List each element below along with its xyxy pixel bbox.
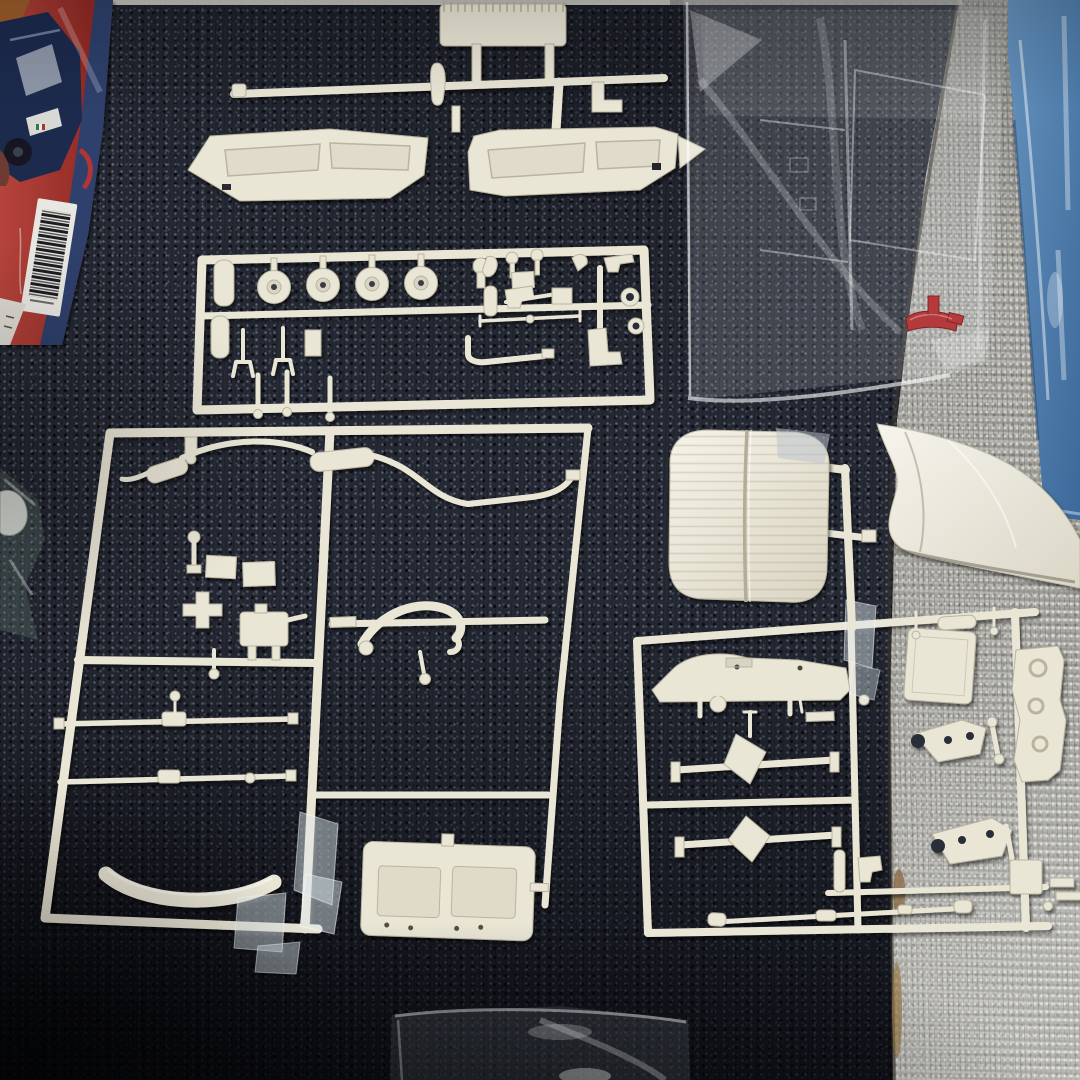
- floor-panel-part: [360, 831, 550, 941]
- axle-rod-1: [54, 691, 298, 729]
- rear-axle-2: [675, 816, 841, 862]
- control-arm-2: [931, 818, 1012, 864]
- rear-axle-1: [671, 712, 839, 784]
- bumper-part: [106, 870, 274, 900]
- bench-seat-part: [669, 428, 830, 602]
- chassis-crossmember: [652, 654, 850, 716]
- spindle-part: [431, 63, 446, 105]
- bottom-bag: [390, 1006, 690, 1080]
- axle-rod-2: [60, 770, 296, 783]
- main-sprue: [45, 428, 588, 974]
- dashboard-left: [188, 129, 428, 201]
- kit-box: [0, 0, 113, 345]
- curved-arm-part: [359, 606, 461, 685]
- photo-scene: [0, 0, 1080, 1080]
- dashboard-sprue: [188, 2, 705, 201]
- small-parts-cluster: [183, 531, 305, 679]
- scene-objects: [0, 0, 1080, 1080]
- left-bag-scrap: [0, 468, 45, 640]
- control-arm-1: [911, 717, 1004, 764]
- dashboard-right: [468, 127, 705, 196]
- clear-parts-bag: [683, 0, 1008, 401]
- driveshaft: [708, 900, 972, 926]
- detail-sprue: [197, 249, 650, 422]
- film-on-seat: [776, 428, 830, 464]
- top-edge-strip-bright: [110, 0, 670, 5]
- frame-rail-part: [1012, 646, 1066, 782]
- blue-bag: [1008, 0, 1080, 520]
